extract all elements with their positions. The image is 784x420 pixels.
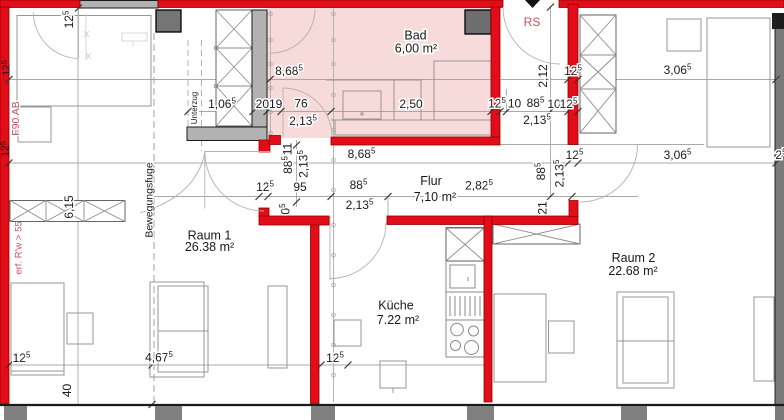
svg-text:7,10 m²: 7,10 m² bbox=[414, 190, 456, 204]
svg-text:Flur: Flur bbox=[420, 174, 442, 188]
svg-text:6,15: 6,15 bbox=[62, 195, 76, 219]
svg-text:RS: RS bbox=[524, 15, 541, 29]
svg-text:2,50: 2,50 bbox=[399, 97, 423, 111]
svg-text:40: 40 bbox=[60, 384, 74, 398]
svg-text:95: 95 bbox=[293, 180, 307, 194]
svg-text:22.68 m²: 22.68 m² bbox=[608, 264, 657, 278]
svg-text:Bewegungsfuge: Bewegungsfuge bbox=[144, 162, 156, 237]
svg-text:Küche: Küche bbox=[378, 299, 413, 313]
svg-text:F90 AB: F90 AB bbox=[10, 101, 22, 135]
svg-text:26.38 m²: 26.38 m² bbox=[185, 240, 234, 254]
svg-text:Bad: Bad bbox=[404, 29, 426, 43]
svg-text:erf. R'w > 55: erf. R'w > 55 bbox=[14, 221, 25, 274]
svg-text:6,00 m²: 6,00 m² bbox=[395, 42, 437, 56]
svg-text:Unterzug: Unterzug bbox=[190, 92, 199, 124]
svg-text:2019: 2019 bbox=[256, 97, 283, 111]
svg-text:Raum 2: Raum 2 bbox=[612, 251, 656, 265]
svg-text:76: 76 bbox=[294, 97, 308, 111]
svg-text:7.22 m²: 7.22 m² bbox=[377, 313, 419, 327]
svg-text:10: 10 bbox=[508, 97, 522, 111]
svg-text:21: 21 bbox=[536, 201, 550, 215]
svg-text:2,12: 2,12 bbox=[536, 64, 550, 88]
svg-text:11: 11 bbox=[281, 142, 295, 155]
